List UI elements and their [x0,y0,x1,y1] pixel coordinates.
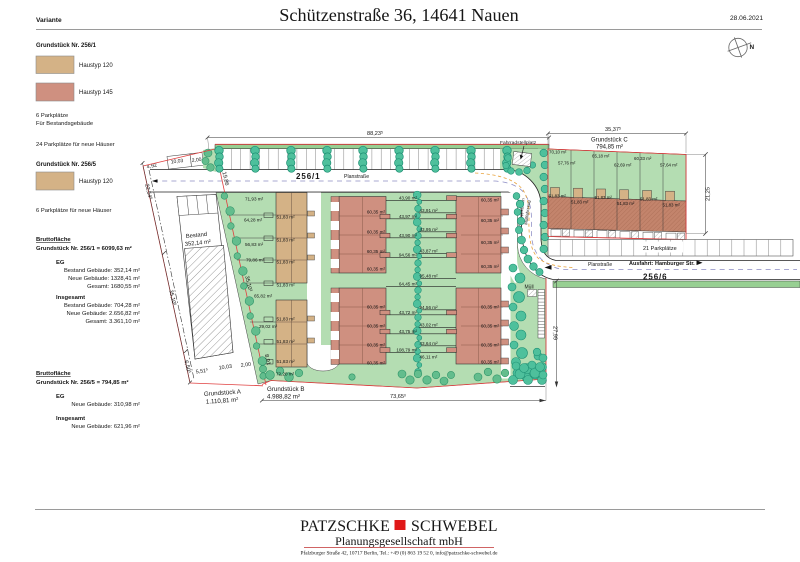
svg-text:Grundstück C: Grundstück C [591,138,628,144]
svg-text:60,35 m²: 60,35 m² [367,249,386,254]
svg-text:51,83 m²: 51,83 m² [663,203,681,208]
svg-text:Neue Gebäude: 621,96 m²: Neue Gebäude: 621,96 m² [71,424,140,430]
svg-text:Grundstück Nr. 256/1: Grundstück Nr. 256/1 [36,43,97,49]
svg-text:794,85 m²: 794,85 m² [596,145,623,151]
svg-text:Haustyp 120: Haustyp 120 [79,179,113,185]
svg-text:21,25: 21,25 [706,187,712,201]
svg-text:60,35 m²: 60,35 m² [367,230,386,235]
svg-text:51,83 m²: 51,83 m² [277,317,296,322]
svg-text:51,83 m²: 51,83 m² [277,283,296,288]
svg-text:4.988,82 m²: 4.988,82 m² [267,394,300,401]
svg-text:65,82 m²: 65,82 m² [254,294,273,299]
svg-text:60,35 m²: 60,35 m² [367,324,386,329]
svg-text:SCHWEBEL: SCHWEBEL [411,518,498,535]
svg-text:79,86 m²: 79,86 m² [246,258,265,263]
svg-text:43,95 m²: 43,95 m² [420,227,439,232]
svg-text:60,35 m²: 60,35 m² [367,267,386,272]
svg-text:21 Parkplätze: 21 Parkplätze [643,246,677,252]
svg-text:94,56 m²: 94,56 m² [399,253,418,258]
svg-text:43,97 m²: 43,97 m² [399,214,418,219]
svg-text:Haustyp 120: Haustyp 120 [79,63,113,69]
svg-text:N: N [750,44,755,51]
svg-text:Grundstück B: Grundstück B [267,386,305,393]
svg-text:60,33 m²: 60,33 m² [634,156,652,161]
svg-text:51,83 m²: 51,83 m² [277,238,296,243]
svg-text:95,48 m²: 95,48 m² [420,274,439,279]
svg-text:29,02 m²: 29,02 m² [259,324,278,329]
svg-text:60,35 m²: 60,35 m² [367,305,386,310]
svg-text:Planstraße: Planstraße [588,262,612,268]
svg-text:43,72 m²: 43,72 m² [399,310,418,315]
svg-text:71,93 m²: 71,93 m² [245,197,264,202]
svg-text:51,83 m²: 51,83 m² [595,195,613,200]
svg-text:60,35 m²: 60,35 m² [481,343,500,348]
svg-text:PATZSCHKE: PATZSCHKE [300,518,390,535]
svg-text:43,02 m²: 43,02 m² [420,323,439,328]
svg-text:72,20 m²: 72,20 m² [276,372,295,377]
svg-text:73,650: 73,650 [390,393,406,400]
svg-text:Fahrradstellplatz: Fahrradstellplatz [500,140,537,146]
svg-text:60,35 m²: 60,35 m² [367,361,386,366]
svg-text:43,90 m²: 43,90 m² [399,196,418,201]
svg-text:Planungsgesellschaft mbH: Planungsgesellschaft mbH [335,534,463,548]
svg-text:256/6: 256/6 [643,273,668,282]
svg-text:51,83 m²: 51,83 m² [549,194,567,199]
svg-text:Neue Gebäude: 2.656,82 m²: Neue Gebäude: 2.656,82 m² [67,311,141,317]
svg-text:Neue Gebäude: 1328,41 m²: Neue Gebäude: 1328,41 m² [68,276,140,282]
svg-text:Für Bestandsgebäude: Für Bestandsgebäude [36,121,93,127]
svg-text:64,45 m²: 64,45 m² [399,282,418,287]
svg-text:60,35 m²: 60,35 m² [481,218,500,223]
svg-text:Insgesamt: Insgesamt [56,416,85,422]
svg-text:62,69 m²: 62,69 m² [614,163,632,168]
svg-text:Gesamt: 1680,55 m²: Gesamt: 1680,55 m² [87,284,140,290]
svg-text:60,35 m²: 60,35 m² [367,210,386,215]
svg-text:EG: EG [56,394,65,400]
svg-text:Haustyp 145: Haustyp 145 [79,90,113,96]
svg-text:Bruttofläche: Bruttofläche [36,371,71,377]
svg-text:60,35 m²: 60,35 m² [481,240,500,245]
svg-text:57,76 m²: 57,76 m² [558,161,576,166]
svg-text:64,28 m²: 64,28 m² [244,218,263,223]
svg-text:Schützenstraße 36, 14641 Nauen: Schützenstraße 36, 14641 Nauen [279,5,518,25]
svg-text:Grundstück Nr. 256/5: Grundstück Nr. 256/5 [36,162,97,168]
svg-text:60,35 m²: 60,35 m² [481,305,500,310]
svg-text:27,99: 27,99 [552,326,558,340]
svg-text:65,18 m²: 65,18 m² [592,154,610,159]
svg-text:Bestand Gebäude: 352,14 m²: Bestand Gebäude: 352,14 m² [64,268,140,274]
svg-text:Grundstück Nr. 256/5 = 794,85: Grundstück Nr. 256/5 = 794,85 m² [36,379,129,386]
svg-text:43,91 m²: 43,91 m² [420,208,439,213]
svg-text:94,56 m²: 94,56 m² [420,305,439,310]
svg-text:43,87 m²: 43,87 m² [420,249,439,254]
svg-text:51,83 m²: 51,83 m² [640,197,658,202]
svg-text:Ausfahrt: Hamburger Str.: Ausfahrt: Hamburger Str. [629,261,695,267]
svg-text:60,35 m²: 60,35 m² [367,343,386,348]
svg-text:51,83 m²: 51,83 m² [277,260,296,265]
svg-text:43,64 m²: 43,64 m² [420,341,439,346]
svg-text:60,35 m²: 60,35 m² [481,264,500,269]
svg-text:51,83 m²: 51,83 m² [571,200,589,205]
svg-text:28.06.2021: 28.06.2021 [730,15,763,22]
svg-text:56,83 m²: 56,83 m² [245,242,264,247]
svg-text:60,35 m²: 60,35 m² [481,324,500,329]
svg-text:EG: EG [56,260,65,266]
svg-text:43,90 m²: 43,90 m² [399,233,418,238]
svg-text:Planstraße: Planstraße [344,174,369,180]
svg-text:35,375: 35,375 [605,126,621,133]
svg-text:57,64 m²: 57,64 m² [660,163,678,168]
svg-text:51,83 m²: 51,83 m² [277,215,296,220]
svg-text:43,75 m²: 43,75 m² [399,329,418,334]
svg-text:51,83 m²: 51,83 m² [277,339,296,344]
svg-text:6 Parkplätze für neue Häuser: 6 Parkplätze für neue Häuser [36,208,111,214]
svg-text:Neue Gebäude: 310,98 m²: Neue Gebäude: 310,98 m² [71,402,140,408]
svg-text:88,235: 88,235 [367,130,383,137]
svg-text:46,11 m²: 46,11 m² [420,355,438,360]
svg-text:Bestand Gebäude: 704,28 m²: Bestand Gebäude: 704,28 m² [64,303,140,309]
svg-text:108,79 m²: 108,79 m² [396,348,417,353]
svg-text:51,83 m²: 51,83 m² [277,359,296,364]
svg-text:Grundstück Nr. 256/1 = 6099,63: Grundstück Nr. 256/1 = 6099,63 m² [36,245,132,252]
svg-text:Gesamt: 3.361,10 m²: Gesamt: 3.361,10 m² [86,319,141,325]
svg-text:6 Parkplätze: 6 Parkplätze [36,113,68,119]
svg-text:60,35 m²: 60,35 m² [481,360,500,365]
svg-text:Bruttofläche: Bruttofläche [36,237,71,243]
svg-text:60,35 m²: 60,35 m² [481,198,500,203]
svg-text:51,83 m²: 51,83 m² [617,201,635,206]
svg-text:Variante: Variante [36,17,62,24]
svg-text:2,00: 2,00 [192,157,203,164]
svg-text:256/1: 256/1 [296,172,321,181]
svg-text:70,10 m²: 70,10 m² [549,150,567,155]
svg-text:24 Parkplätze für neue Häuser: 24 Parkplätze für neue Häuser [36,142,115,148]
svg-text:Insgesamt: Insgesamt [56,295,85,301]
svg-text:Pfalzburger Straße 42, 10717 B: Pfalzburger Straße 42, 10717 Berlin, Tel… [301,550,499,557]
